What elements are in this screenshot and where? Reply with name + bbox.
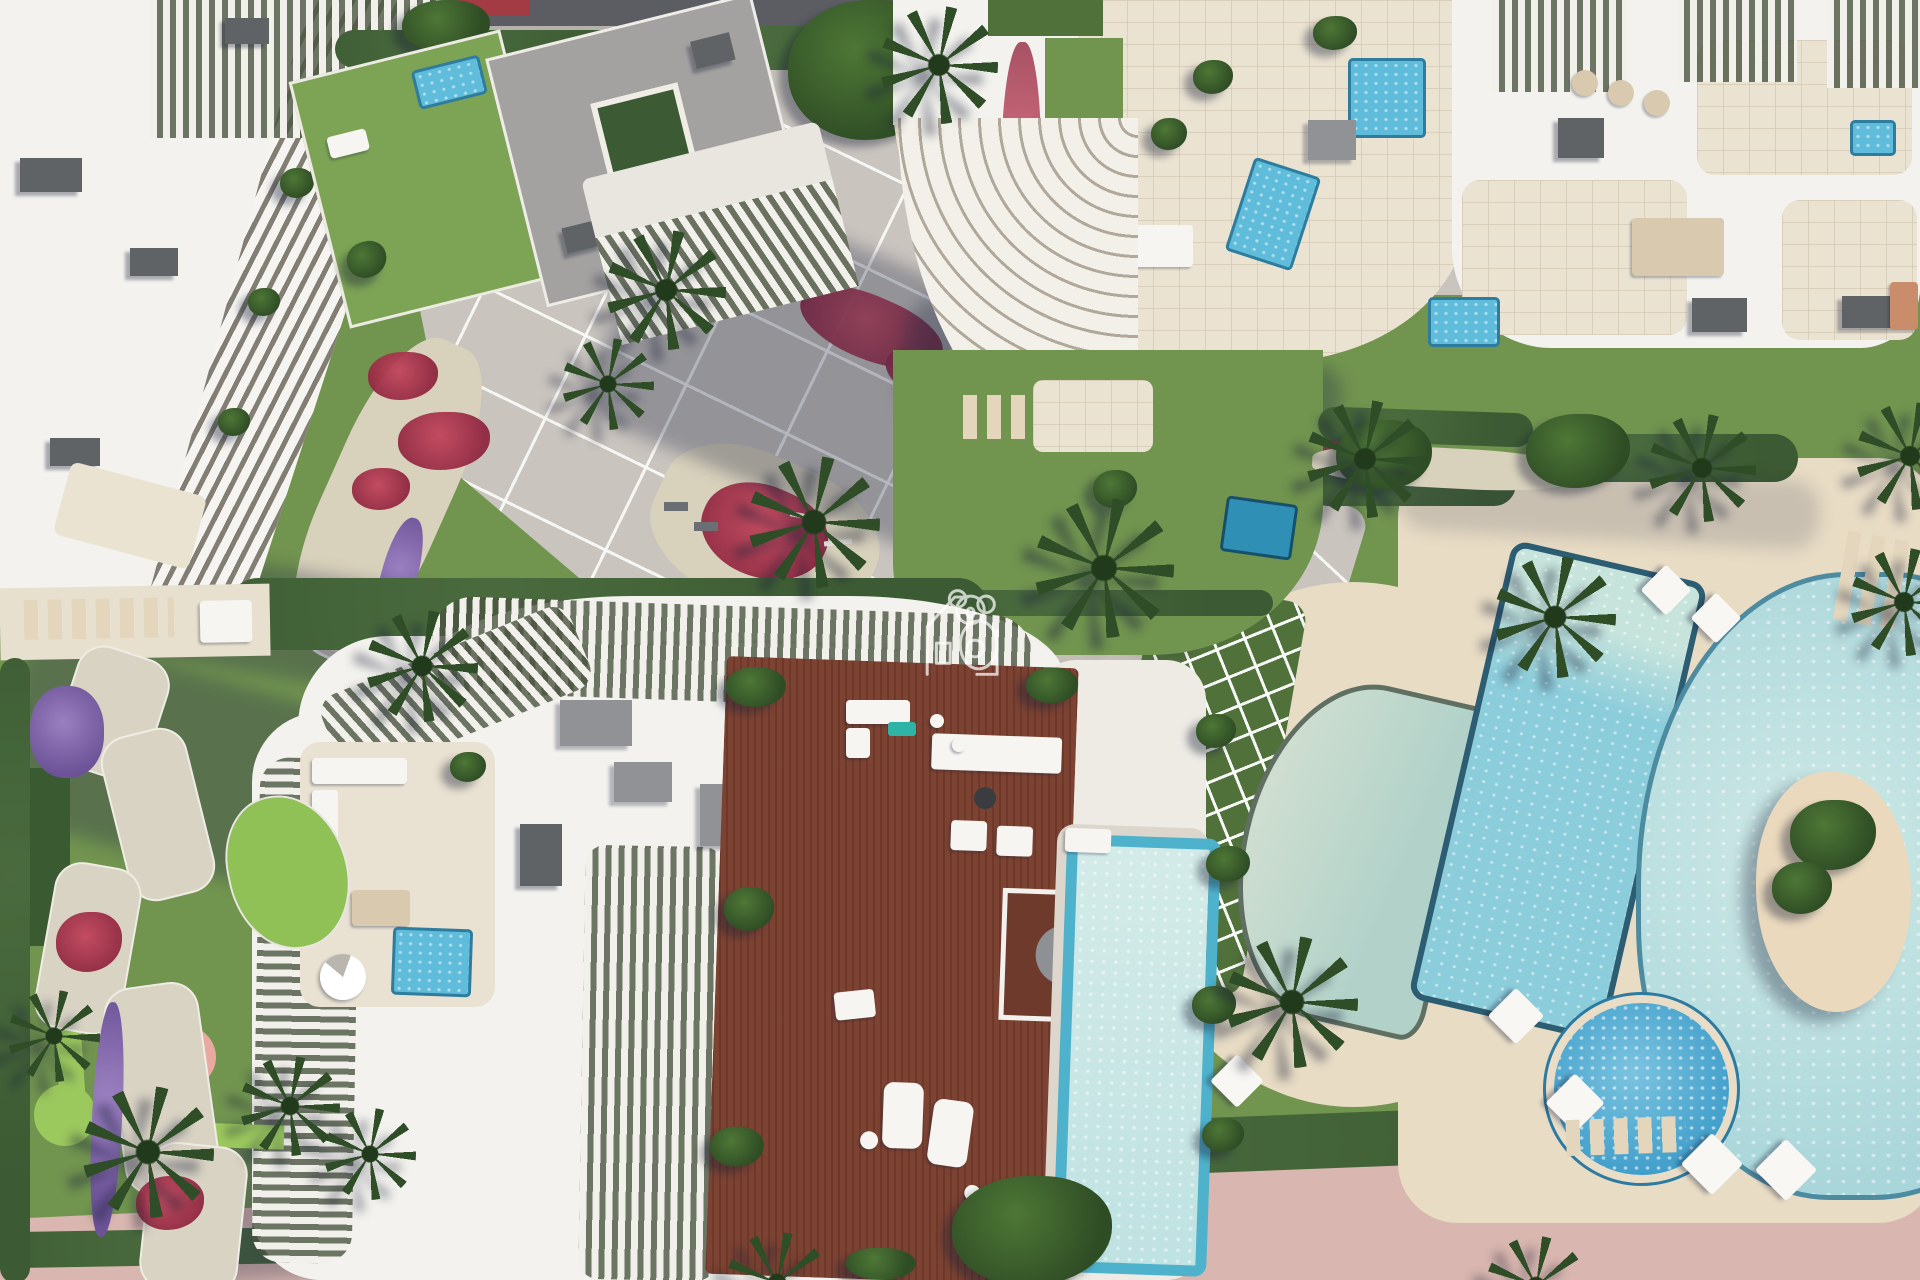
roof-garden-strip [988, 0, 1103, 36]
deck-planter [845, 1247, 916, 1280]
deck-lounger [926, 1098, 975, 1169]
lawn-sofa [846, 700, 910, 724]
lawn-sofa [846, 728, 870, 758]
west-boundary-hedge [0, 658, 30, 1280]
rooftop-unit [690, 32, 736, 69]
palm-tree [1648, 414, 1756, 522]
plunge-pool [1850, 120, 1896, 156]
deck-planter [723, 886, 775, 932]
fire-pit [974, 787, 997, 810]
rooftop-unit [1692, 298, 1747, 332]
plunge-pool [1428, 297, 1500, 347]
roof-pergola-center [578, 845, 724, 1280]
rooftop-unit [130, 248, 178, 276]
wicker-chair [1644, 90, 1670, 116]
terrace-dining-set [1133, 225, 1193, 267]
rooftop-unit [520, 824, 562, 886]
side-table [860, 1131, 879, 1150]
palm-tree [1034, 498, 1174, 638]
plunge-pool [1348, 58, 1426, 138]
outdoor-dining-set [1890, 282, 1918, 330]
lawn-chair [952, 738, 966, 752]
terrace-sofa-set [1632, 218, 1724, 276]
palm-tree [8, 990, 100, 1082]
deck-sofa [200, 600, 253, 643]
deck-planter [709, 1126, 764, 1168]
terrace-planter [450, 752, 486, 782]
garden-loungers [326, 128, 370, 159]
plunge-pool [1225, 157, 1322, 272]
aerial-render-scene [0, 0, 1920, 1280]
deck-cushion [833, 989, 876, 1021]
terrace-planter [1151, 118, 1187, 150]
park-bench [664, 502, 688, 511]
lawn-chair [930, 714, 944, 728]
garden-shrub [343, 237, 391, 282]
garden-patio [1033, 380, 1153, 452]
roof-pergola [1492, 0, 1627, 92]
palm-tree [82, 1086, 214, 1218]
private-garden-pool [1219, 495, 1298, 560]
rooftop-unit [1558, 118, 1604, 158]
terrace-sofa [312, 758, 407, 784]
palm-tree [1226, 936, 1358, 1068]
palm-tree [1306, 400, 1424, 518]
palm-tree [366, 610, 478, 722]
rooftop-unit [225, 18, 269, 44]
wicker-chair [1608, 80, 1634, 106]
palm-tree [880, 6, 998, 124]
wicker-chair [1572, 70, 1598, 96]
park-bench [694, 522, 718, 531]
deck-lounger [882, 1082, 924, 1149]
deck-planter [1025, 667, 1078, 705]
garden-loungers [963, 395, 1029, 439]
promenade-tree [952, 1176, 1112, 1280]
purple-flower-patch [30, 686, 104, 778]
lounger-deck [0, 584, 271, 661]
garden-plunge-pool [411, 54, 489, 110]
rooftop-unit [1842, 296, 1894, 328]
terrace-plunge-pool [391, 927, 473, 998]
rooftop-unit [50, 438, 100, 466]
deck-chair [950, 820, 987, 851]
spiral-staircase [320, 954, 366, 1000]
outdoor-dining-table [352, 890, 410, 926]
pool-steps [1065, 828, 1112, 854]
rooftop-unit [614, 762, 672, 802]
terrace-planter [1193, 60, 1233, 94]
roof-pergola [1677, 0, 1797, 82]
koala-house-watermark-icon [918, 582, 1010, 682]
deck-planter [725, 666, 786, 708]
deck-chair [996, 826, 1033, 857]
rooftop-unit [560, 700, 632, 746]
lawn-games-table [888, 722, 916, 736]
palm-tree [606, 230, 726, 350]
rooftop-unit [1308, 120, 1356, 160]
deck-loungers [24, 597, 175, 640]
roof-pergola [1827, 0, 1920, 88]
rooftop-unit [20, 158, 82, 192]
palm-tree [562, 338, 654, 430]
palm-tree [748, 456, 880, 588]
palm-tree [324, 1108, 416, 1200]
terrace-planter [1313, 16, 1357, 50]
palm-tree [1494, 556, 1616, 678]
poolside-loungers [1565, 1116, 1686, 1156]
building-northeast-east-wing [1452, 0, 1920, 348]
deck-sofa [931, 733, 1062, 774]
